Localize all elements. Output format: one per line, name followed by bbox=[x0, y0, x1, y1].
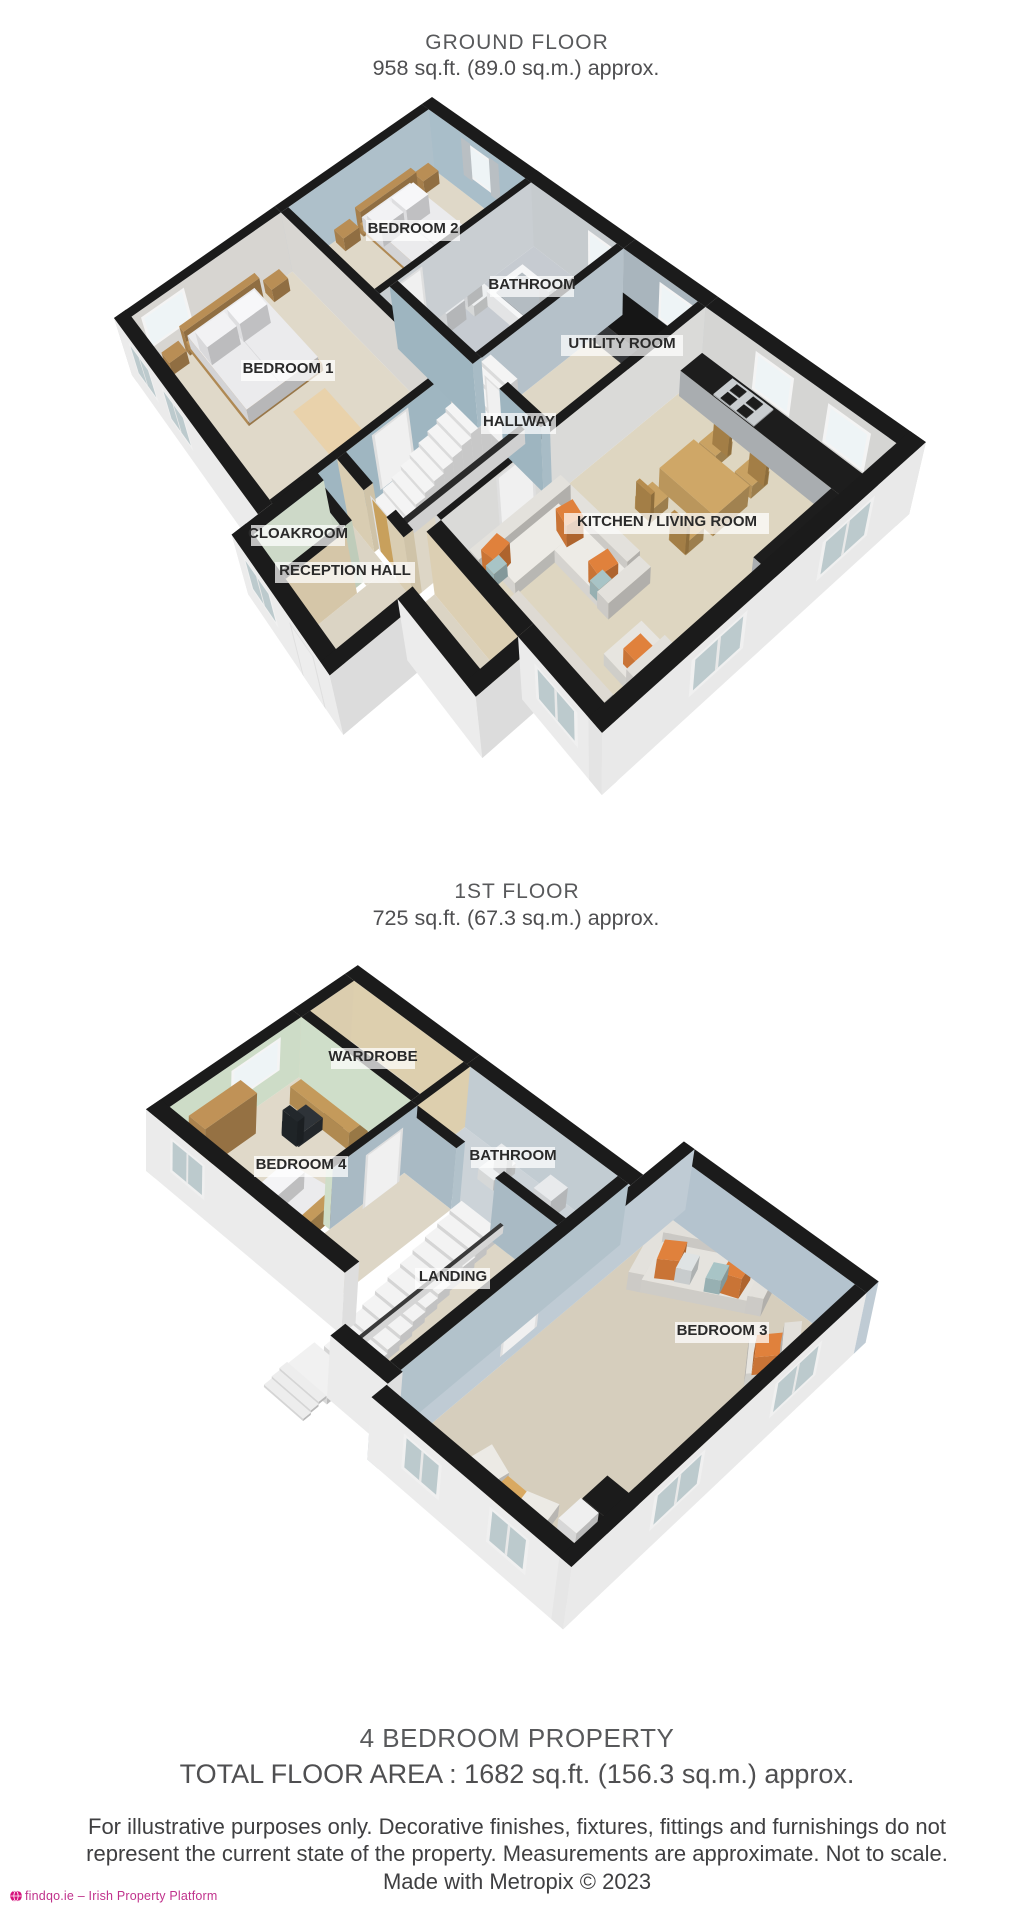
svg-text:For illustrative purposes only: For illustrative purposes only. Decorati… bbox=[88, 1814, 946, 1839]
svg-text:725 sq.ft. (67.3 sq.m.) approx: 725 sq.ft. (67.3 sq.m.) approx. bbox=[373, 906, 660, 930]
svg-text:RECEPTION HALL: RECEPTION HALL bbox=[279, 562, 411, 579]
svg-text:BEDROOM 4: BEDROOM 4 bbox=[256, 1156, 348, 1173]
svg-text:Made with Metropix © 2023: Made with Metropix © 2023 bbox=[383, 1869, 651, 1894]
svg-text:TOTAL FLOOR AREA : 1682 sq.ft.: TOTAL FLOOR AREA : 1682 sq.ft. (156.3 sq… bbox=[180, 1759, 855, 1789]
svg-text:UTILITY ROOM: UTILITY ROOM bbox=[568, 335, 675, 352]
svg-text:BEDROOM 1: BEDROOM 1 bbox=[243, 360, 334, 377]
svg-text:1ST FLOOR: 1ST FLOOR bbox=[454, 880, 579, 903]
svg-text:findqo.ie – Irish Property Pla: findqo.ie – Irish Property Platform bbox=[25, 1889, 218, 1903]
svg-text:KITCHEN / LIVING ROOM: KITCHEN / LIVING ROOM bbox=[577, 513, 757, 530]
svg-text:LANDING: LANDING bbox=[419, 1268, 487, 1285]
svg-text:BEDROOM 2: BEDROOM 2 bbox=[368, 220, 459, 237]
svg-text:HALLWAY: HALLWAY bbox=[483, 413, 555, 430]
svg-text:BATHROOM: BATHROOM bbox=[469, 1147, 556, 1164]
svg-text:BEDROOM 3: BEDROOM 3 bbox=[677, 1322, 768, 1339]
svg-text:WARDROBE: WARDROBE bbox=[328, 1048, 417, 1065]
svg-text:4 BEDROOM PROPERTY: 4 BEDROOM PROPERTY bbox=[360, 1723, 675, 1753]
svg-text:958 sq.ft. (89.0 sq.m.) approx: 958 sq.ft. (89.0 sq.m.) approx. bbox=[373, 56, 660, 80]
svg-text:GROUND FLOOR: GROUND FLOOR bbox=[425, 31, 609, 54]
svg-text:CLOAKROOM: CLOAKROOM bbox=[248, 525, 348, 542]
svg-text:BATHROOM: BATHROOM bbox=[488, 276, 575, 293]
svg-text:represent the current state of: represent the current state of the prope… bbox=[86, 1841, 948, 1866]
